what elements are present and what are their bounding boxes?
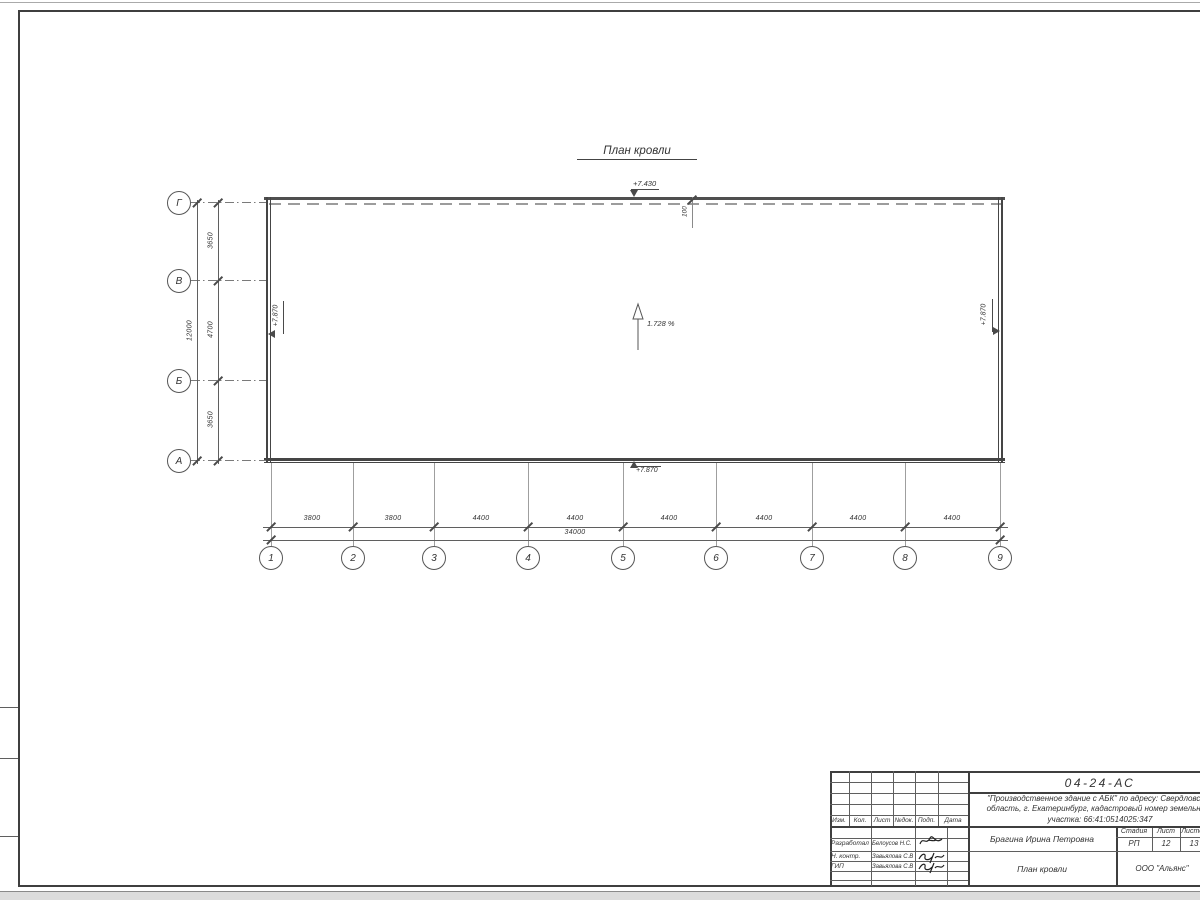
tb-vline [915, 771, 916, 886]
parapet-dim-line [692, 197, 693, 228]
frame-bottom [18, 885, 1200, 887]
axis-line-g [191, 202, 266, 203]
axis-circle-8: 8 [893, 546, 917, 570]
tb-list-value: 12 [1152, 839, 1180, 848]
axis-line-v [191, 280, 266, 281]
grid-line-7 [812, 463, 813, 546]
axis-circle-4: 4 [516, 546, 540, 570]
axis-circle-5: 5 [611, 546, 635, 570]
tb-doc-number: 04-24-АС [985, 776, 1200, 790]
tb-hline [830, 793, 968, 794]
slope-arrow-icon [629, 302, 647, 352]
dim-label: 4400 [555, 515, 595, 522]
tb-hline [830, 782, 968, 783]
axis-circle-1: 1 [259, 546, 283, 570]
dim-line-left-total [197, 200, 198, 464]
dim-label: 4400 [461, 515, 501, 522]
axis-label: 7 [809, 553, 815, 564]
axis-circle-a: А [167, 449, 191, 473]
paper-top-edge [0, 2, 1200, 3]
elevation-right-arrow [993, 327, 1000, 335]
tb-listov-header: Листов [1180, 828, 1200, 835]
elevation-left-arrow [268, 330, 275, 338]
tb-col-izm: Изм. [829, 817, 849, 824]
dim-label-total: 34000 [555, 529, 595, 536]
tb-customer-name: Брагина Ирина Петровна [968, 834, 1116, 844]
axis-label: А [176, 456, 183, 467]
grid-line-1 [271, 463, 272, 546]
tb-stage-header: Стадия [1116, 828, 1152, 835]
axis-circle-v: В [167, 269, 191, 293]
tb-vline-right [1116, 826, 1118, 886]
tb-sheet-title: План кровли [968, 864, 1116, 874]
dim-label: 4700 [208, 310, 215, 350]
axis-label: Г [176, 198, 181, 209]
tb-hline [830, 871, 968, 872]
dim-label: 3800 [373, 515, 413, 522]
elevation-top-label: +7.430 [633, 179, 656, 188]
drawing-sheet: План кровли 3800 3800 4400 4400 4400 440… [0, 0, 1200, 900]
dim-label: 4400 [649, 515, 689, 522]
tb-project-line1: "Производственное здание с АБК" по адрес… [960, 794, 1200, 803]
axis-label: 2 [350, 553, 356, 564]
grid-line-8 [905, 463, 906, 546]
axis-circle-6: 6 [704, 546, 728, 570]
axis-circle-9: 9 [988, 546, 1012, 570]
dim-line-bottom [263, 527, 1008, 528]
grid-line-9 [1000, 463, 1001, 546]
axis-label: 3 [431, 553, 437, 564]
signature-developer-icon [917, 833, 945, 848]
dim-label: 3650 [208, 400, 215, 440]
building-top-edge [264, 197, 1005, 200]
margin-tick-1 [0, 707, 18, 708]
tb-hline [830, 861, 968, 862]
grid-line-6 [716, 463, 717, 546]
tb-hline [830, 804, 968, 805]
elevation-bottom-label: +7.870 [636, 467, 658, 474]
tb-name-developer: Белоусов Н.С. [872, 841, 912, 847]
frame-top [18, 10, 1200, 12]
tb-name-gip: Завьялова С.В [872, 864, 913, 870]
margin-tick-3 [0, 836, 18, 837]
tb-col-list: Лист [871, 817, 893, 824]
slope-label: 1.728 % [647, 319, 675, 328]
tb-role-gip: ГИП [831, 863, 844, 870]
axis-label: Б [176, 376, 183, 387]
tb-name-ncontrol: Завьялова С.В [872, 854, 913, 860]
axis-label: 1 [268, 553, 274, 564]
tb-stage-value: РП [1116, 839, 1152, 848]
axis-label: 6 [713, 553, 719, 564]
margin-tick-2 [0, 758, 18, 759]
dim-label-total: 12000 [187, 311, 194, 351]
plan-title: План кровли [577, 145, 697, 160]
axis-circle-2: 2 [341, 546, 365, 570]
tb-vline [947, 826, 948, 886]
tb-hline [830, 815, 968, 816]
frame-left [18, 10, 20, 886]
tb-col-ndok: №док. [893, 817, 915, 824]
tb-project-line3: участка: 66:41:0514025:347 [960, 815, 1200, 824]
axis-label: 5 [620, 553, 626, 564]
tb-company: ООО "Альянс" [1116, 864, 1200, 873]
axis-label: 4 [525, 553, 531, 564]
grid-line-4 [528, 463, 529, 546]
tb-project-line2: область, г. Екатеринбург, кадастровый но… [960, 804, 1200, 813]
dim-label: 3650 [208, 221, 215, 261]
dim-label: 3800 [292, 515, 332, 522]
titleblock-top [830, 771, 1200, 773]
dim-label: 4400 [838, 515, 878, 522]
tb-hline [1116, 837, 1200, 838]
dim-label: 4400 [744, 515, 784, 522]
signature-gip-icon [917, 860, 945, 874]
tb-col-podp: Подп. [915, 817, 938, 824]
tb-listov-value: 13 [1180, 839, 1200, 848]
axis-circle-g: Г [167, 191, 191, 215]
paper-bottom-band [0, 892, 1200, 900]
dim-line-bottom-total [263, 540, 1008, 541]
tb-role-ncontrol: Н. контр. [831, 853, 860, 860]
elevation-left-underline [283, 301, 284, 334]
tb-col-kol: Кол. [850, 817, 870, 824]
tb-hline [830, 880, 968, 881]
parapet-dim-label: 100 [682, 200, 689, 224]
parapet-dashed-line [269, 203, 1001, 205]
grid-line-2 [353, 463, 354, 546]
tb-hline [830, 851, 1200, 852]
grid-line-5 [623, 463, 624, 546]
elevation-right-label: +7.870 [981, 295, 988, 335]
grid-line-3 [434, 463, 435, 546]
axis-circle-7: 7 [800, 546, 824, 570]
axis-label: 9 [997, 553, 1003, 564]
axis-circle-b: Б [167, 369, 191, 393]
axis-label: 8 [902, 553, 908, 564]
tb-hline [830, 838, 968, 839]
tb-list-header: Лист [1152, 828, 1180, 835]
axis-label: В [176, 276, 183, 287]
elevation-top-arrow [630, 190, 638, 197]
dim-label: 4400 [932, 515, 972, 522]
dim-line-left [218, 200, 219, 464]
tb-role-developer: Разработал [831, 840, 869, 847]
axis-line-a [191, 460, 266, 461]
axis-circle-3: 3 [422, 546, 446, 570]
axis-line-b [191, 380, 266, 381]
